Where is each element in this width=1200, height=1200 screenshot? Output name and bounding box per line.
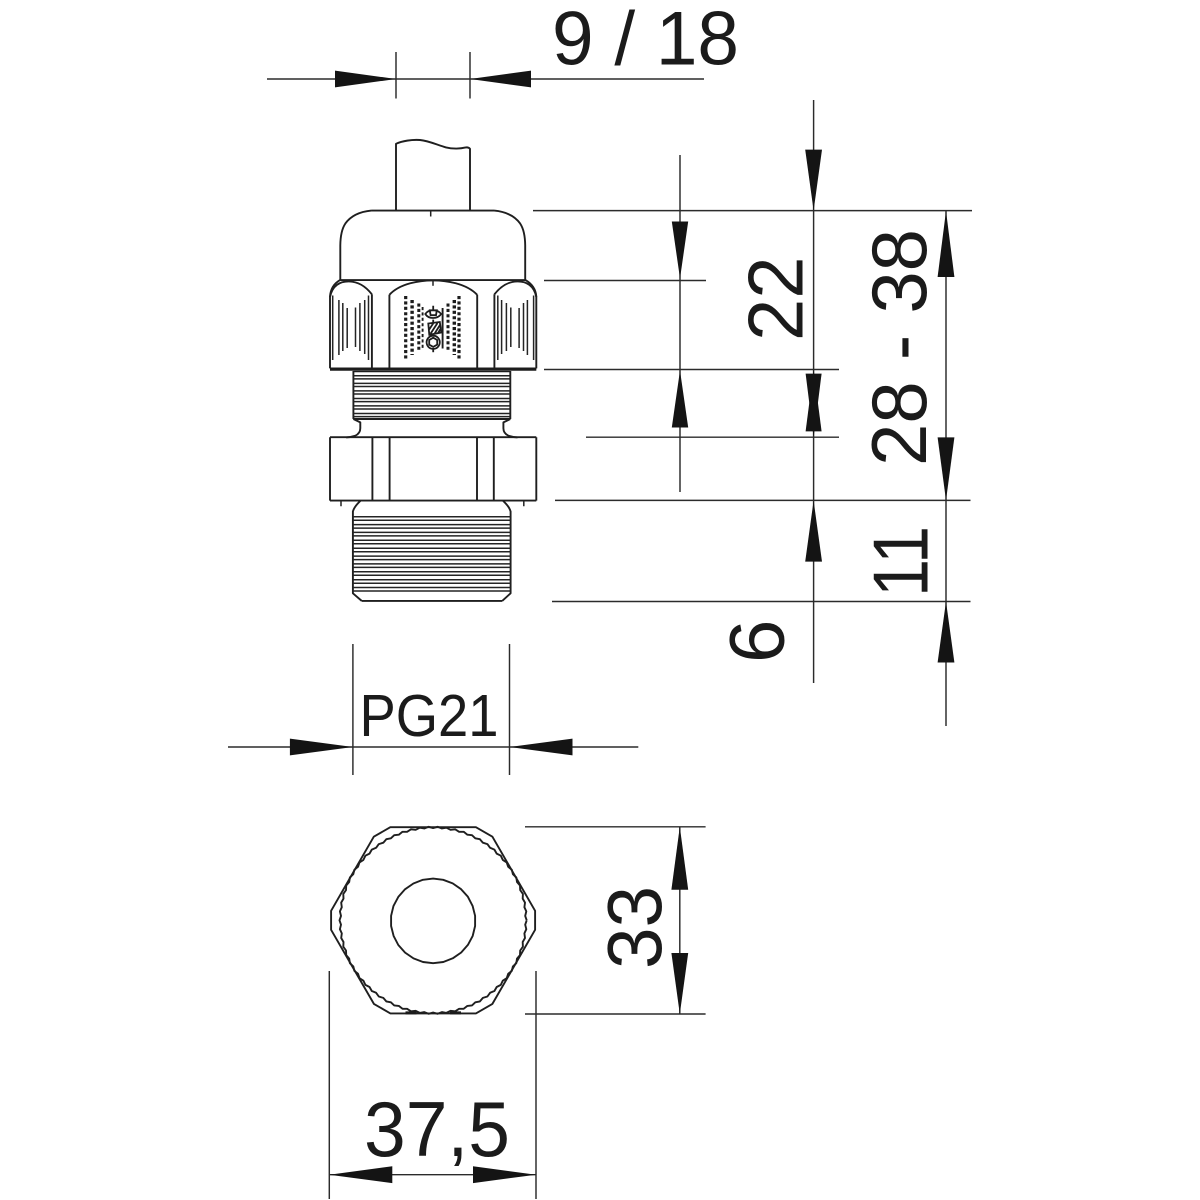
svg-text:6: 6	[713, 620, 801, 663]
svg-text:37,5: 37,5	[364, 1087, 510, 1173]
svg-text:11: 11	[859, 526, 945, 597]
svg-text:33: 33	[593, 886, 679, 969]
svg-text:28 - 38: 28 - 38	[857, 229, 943, 466]
svg-text:9 / 18: 9 / 18	[552, 0, 739, 82]
svg-text:22: 22	[734, 257, 820, 342]
svg-text:PG21: PG21	[360, 683, 499, 749]
